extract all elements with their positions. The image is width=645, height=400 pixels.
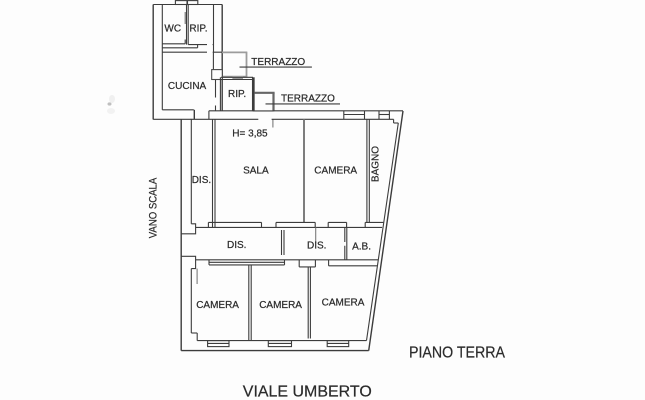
svg-text:BAGNO: BAGNO	[370, 146, 381, 182]
svg-text:RIP.: RIP.	[228, 89, 246, 100]
svg-text:H= 3,85: H= 3,85	[232, 129, 268, 140]
svg-text:CAMERA: CAMERA	[196, 300, 239, 311]
svg-text:CAMERA: CAMERA	[322, 298, 365, 309]
svg-text:VIALE UMBERTO: VIALE UMBERTO	[243, 384, 372, 400]
svg-text:CUCINA: CUCINA	[168, 81, 207, 92]
svg-text:TERRAZZO: TERRAZZO	[251, 57, 305, 68]
svg-text:CAMERA: CAMERA	[314, 166, 357, 177]
svg-text:DIS.: DIS.	[227, 240, 246, 251]
svg-text:A.B.: A.B.	[352, 241, 371, 252]
svg-text:TERRAZZO: TERRAZZO	[281, 94, 335, 105]
svg-text:CAMERA: CAMERA	[259, 300, 302, 311]
svg-text:PIANO TERRA: PIANO TERRA	[409, 345, 505, 362]
svg-text:VANO SCALA: VANO SCALA	[148, 177, 160, 238]
svg-text:SALA: SALA	[243, 166, 269, 177]
svg-text:RIP.: RIP.	[189, 23, 207, 34]
svg-text:WC: WC	[164, 23, 181, 34]
svg-text:DIS.: DIS.	[307, 240, 326, 251]
svg-text:DIS.: DIS.	[192, 175, 211, 186]
